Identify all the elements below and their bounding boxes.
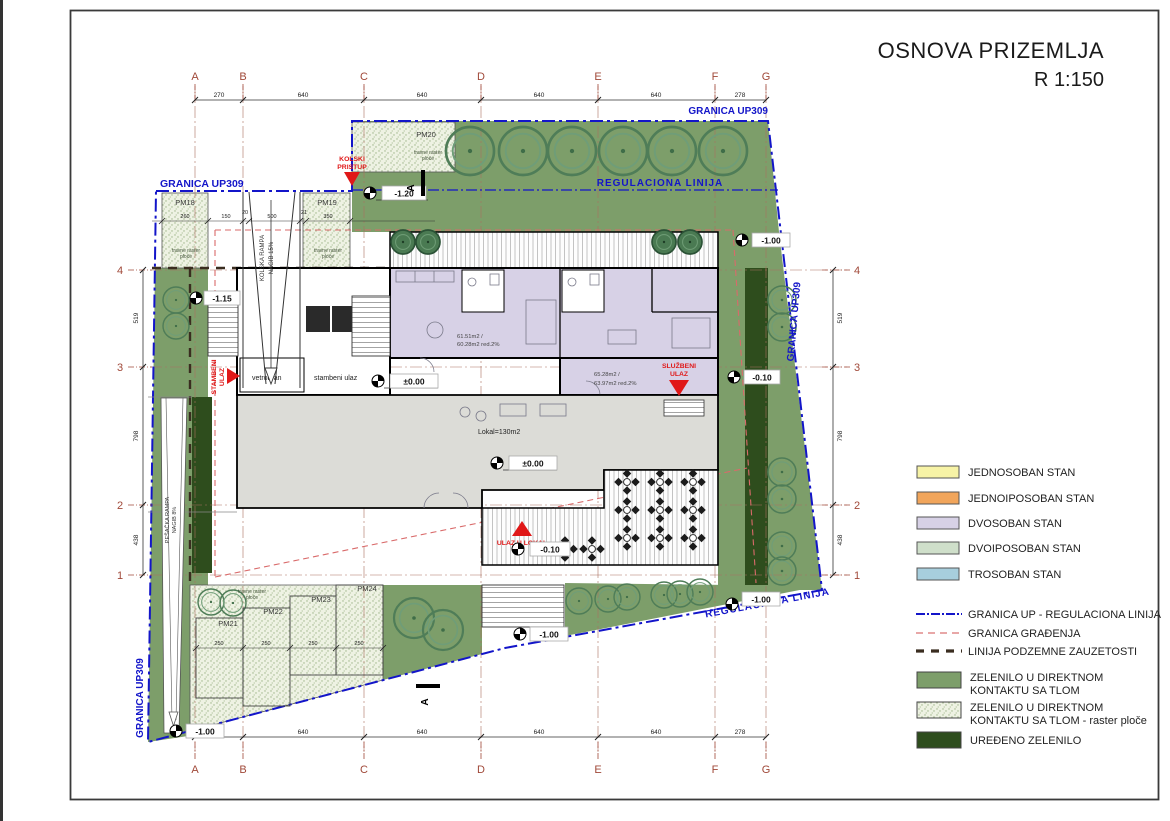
grid-letter: C bbox=[360, 71, 368, 83]
dim-label: 798 bbox=[837, 430, 844, 441]
grid-letter: F bbox=[712, 764, 719, 776]
unit2-area-line2: 63.97m2 red.2% bbox=[594, 381, 637, 387]
elevator-1 bbox=[306, 306, 330, 332]
parking-pm20-area bbox=[352, 122, 455, 172]
grid-letter: B bbox=[239, 764, 246, 776]
legend-label: KONTAKTU SA TLOM bbox=[970, 685, 1080, 697]
level-value: -1.00 bbox=[195, 727, 215, 737]
dim-label: 640 bbox=[417, 92, 428, 99]
vetrobran-label: vetrobran bbox=[252, 375, 282, 382]
regulaciona-label-top: REGULACIONA LINIJA bbox=[597, 178, 724, 189]
dim-label: 519 bbox=[133, 312, 140, 323]
service-steps bbox=[664, 400, 704, 416]
stambeni-ulaz-label: stambeni ulaz bbox=[314, 375, 358, 382]
axis-top: A B C D E F G 270 640 640 640 640 278 bbox=[191, 71, 770, 103]
pesacka-rampa-label: PEŠAČKA RAMPA bbox=[164, 496, 171, 543]
unit1-area-line2: 60.28m2 red.2% bbox=[457, 342, 500, 348]
axis-left: 4 3 2 1 519 798 438 bbox=[117, 265, 152, 582]
legend-label: TROSOBAN STAN bbox=[968, 569, 1061, 581]
dim-label: 250 bbox=[354, 641, 363, 647]
dim-label: 438 bbox=[133, 534, 140, 545]
title-block: OSNOVA PRIZEMLJA R 1:150 bbox=[878, 38, 1104, 91]
level-value: -1.00 bbox=[539, 630, 559, 640]
section-a-bottom: A bbox=[420, 698, 431, 705]
grid-letter: A bbox=[191, 764, 199, 776]
grid-letter: G bbox=[762, 71, 771, 83]
legend-swatch-jednosoban bbox=[917, 466, 959, 478]
stambeni-ulaz-red-label: STAMBENI bbox=[211, 359, 218, 394]
dim-label: 640 bbox=[298, 92, 309, 99]
dim-label: 150 bbox=[221, 214, 230, 220]
pm23-label: PM23 bbox=[311, 595, 331, 604]
grid-number: 2 bbox=[117, 500, 123, 512]
dim-label: 640 bbox=[651, 92, 662, 99]
dim-label: 260 bbox=[180, 214, 189, 220]
dark-green-right bbox=[745, 268, 768, 585]
pm21-label: PM21 bbox=[218, 619, 238, 628]
sheet-left-edge bbox=[0, 0, 3, 821]
pm24-label: PM24 bbox=[357, 584, 377, 593]
kolski-pristup-label2: PRISTUP bbox=[337, 164, 367, 171]
legend-label: LINIJA PODZEMNE ZAUZETOSTI bbox=[968, 646, 1137, 658]
level-value: ±0.00 bbox=[522, 459, 543, 469]
grid-number: 1 bbox=[854, 570, 860, 582]
sluzbeni-ulaz-label: SLUŽBENI bbox=[662, 361, 696, 370]
dim-label: 250 bbox=[308, 641, 317, 647]
granica-up-label-right: GRANICA UP309 bbox=[786, 281, 804, 362]
kolska-nagib-label: NAGIB 15% bbox=[269, 241, 275, 274]
grid-letter: A bbox=[191, 71, 199, 83]
grid-number: 4 bbox=[854, 265, 860, 277]
dim-label: 640 bbox=[298, 729, 309, 736]
green-bottom-left bbox=[383, 585, 482, 680]
level-value: -1.00 bbox=[751, 595, 771, 605]
dim-label: 270 bbox=[214, 92, 225, 99]
legend-swatch-dvosoban bbox=[917, 517, 959, 529]
granica-up-label-left: GRANICA UP309 bbox=[135, 658, 146, 738]
grid-letter: D bbox=[477, 71, 485, 83]
dim-label: 438 bbox=[837, 534, 844, 545]
pm20-label: PM20 bbox=[416, 130, 436, 139]
scale-label: R 1:150 bbox=[1034, 69, 1104, 91]
unit2-area-line1: 65.28m2 / bbox=[594, 372, 620, 378]
legend-swatch-uredjeno-zelenilo bbox=[917, 732, 961, 748]
legend-label: GRANICA UP - REGULACIONA LINIJA bbox=[968, 609, 1162, 621]
grid-letter: B bbox=[239, 71, 246, 83]
grid-letter: F bbox=[712, 71, 719, 83]
dim-label: 640 bbox=[651, 729, 662, 736]
section-a-top: A bbox=[406, 184, 417, 191]
legend-label: ZELENILO U DIREKTNOM bbox=[970, 672, 1103, 684]
level-value: -1.15 bbox=[212, 294, 232, 304]
grid-letter: G bbox=[762, 764, 771, 776]
stambeni-ulaz-red-label2: ULAZ bbox=[219, 368, 226, 386]
dim-label: 519 bbox=[837, 312, 844, 323]
floor-plan-svg: OSNOVA PRIZEMLJA R 1:150 61.51 bbox=[0, 0, 1170, 821]
axis-right: 4 3 2 1 519 798 438 bbox=[822, 265, 860, 582]
grid-number: 4 bbox=[117, 265, 123, 277]
kolski-pristup-label: KOLSKI bbox=[339, 156, 365, 163]
grid-letter: E bbox=[594, 764, 601, 776]
green-right-strip bbox=[718, 232, 822, 590]
grid-number: 3 bbox=[117, 362, 123, 374]
dim-label: 350 bbox=[323, 214, 332, 220]
legend-label: JEDNOSOBAN STAN bbox=[968, 467, 1075, 479]
grid-number: 1 bbox=[117, 570, 123, 582]
level-value: -0.10 bbox=[540, 545, 560, 555]
apartment-block bbox=[390, 268, 718, 358]
legend-label: DVOIPOSOBAN STAN bbox=[968, 543, 1081, 555]
dim-label: 798 bbox=[133, 430, 140, 441]
pm18-label: PM18 bbox=[175, 198, 195, 207]
drawing-sheet: OSNOVA PRIZEMLJA R 1:150 61.51 bbox=[0, 0, 1170, 821]
legend-swatch-zelenilo bbox=[917, 672, 961, 688]
dim-label: 250 bbox=[214, 641, 223, 647]
grid-letter: E bbox=[594, 71, 601, 83]
level-value: -1.00 bbox=[761, 236, 781, 246]
legend-swatch-dvoiposoban bbox=[917, 542, 959, 554]
stairs-core bbox=[352, 296, 390, 356]
grid-number: 3 bbox=[854, 362, 860, 374]
page-title: OSNOVA PRIZEMLJA bbox=[878, 38, 1104, 63]
grid-letter: C bbox=[360, 764, 368, 776]
legend-label: JEDNOIPOSOBAN STAN bbox=[968, 493, 1094, 505]
legend-swatch-zelenilo-raster bbox=[917, 702, 961, 718]
dim-label: 640 bbox=[417, 729, 428, 736]
legend-label: ZELENILO U DIREKTNOM bbox=[970, 702, 1103, 714]
legend: JEDNOSOBAN STAN JEDNOIPOSOBAN STAN DVOSO… bbox=[916, 466, 1162, 748]
level-value: -0.10 bbox=[752, 373, 772, 383]
raster-note: ploče bbox=[322, 254, 334, 260]
garden-steps bbox=[482, 585, 564, 627]
level-value: ±0.00 bbox=[403, 377, 424, 387]
legend-swatch-trosoban bbox=[917, 568, 959, 580]
granica-up-label-topright: GRANICA UP309 bbox=[688, 106, 768, 117]
pesacka-nagib-label: NAGIB 8% bbox=[172, 507, 178, 534]
granica-up-label-topleft: GRANICA UP309 bbox=[160, 178, 244, 190]
legend-label: KONTAKTU SA TLOM - raster ploče bbox=[970, 715, 1147, 727]
legend-label: UREĐENO ZELENILO bbox=[970, 735, 1082, 747]
dim-label: 278 bbox=[735, 92, 746, 99]
legend-swatch-jednoiposoban bbox=[917, 492, 959, 504]
raster-note: ploče bbox=[422, 156, 434, 162]
dim-label: 250 bbox=[261, 641, 270, 647]
dim-label: 21 bbox=[301, 210, 307, 216]
dim-label: 500 bbox=[267, 214, 276, 220]
grid-letter: D bbox=[477, 764, 485, 776]
bathroom-1 bbox=[462, 270, 504, 312]
raster-note: ploče bbox=[180, 254, 192, 260]
pm22-label: PM22 bbox=[263, 607, 283, 616]
bathroom-2 bbox=[562, 270, 604, 312]
dim-label: 640 bbox=[534, 92, 545, 99]
raster-note: ploče bbox=[246, 595, 258, 601]
dim-label: 278 bbox=[735, 729, 746, 736]
legend-label: GRANICA GRAĐENJA bbox=[968, 628, 1081, 640]
sluzbeni-ulaz-label2: ULAZ bbox=[670, 371, 688, 378]
kolska-rampa-label: KOLSKA RAMPA bbox=[260, 235, 266, 281]
unit1-area-line1: 61.51m2 / bbox=[457, 334, 483, 340]
dim-label: 640 bbox=[534, 729, 545, 736]
legend-label: DVOSOBAN STAN bbox=[968, 518, 1062, 530]
pm19-label: PM19 bbox=[317, 198, 337, 207]
lokal-label: Lokal=130m2 bbox=[478, 429, 520, 436]
grid-number: 2 bbox=[854, 500, 860, 512]
dim-label: 20 bbox=[242, 210, 248, 216]
